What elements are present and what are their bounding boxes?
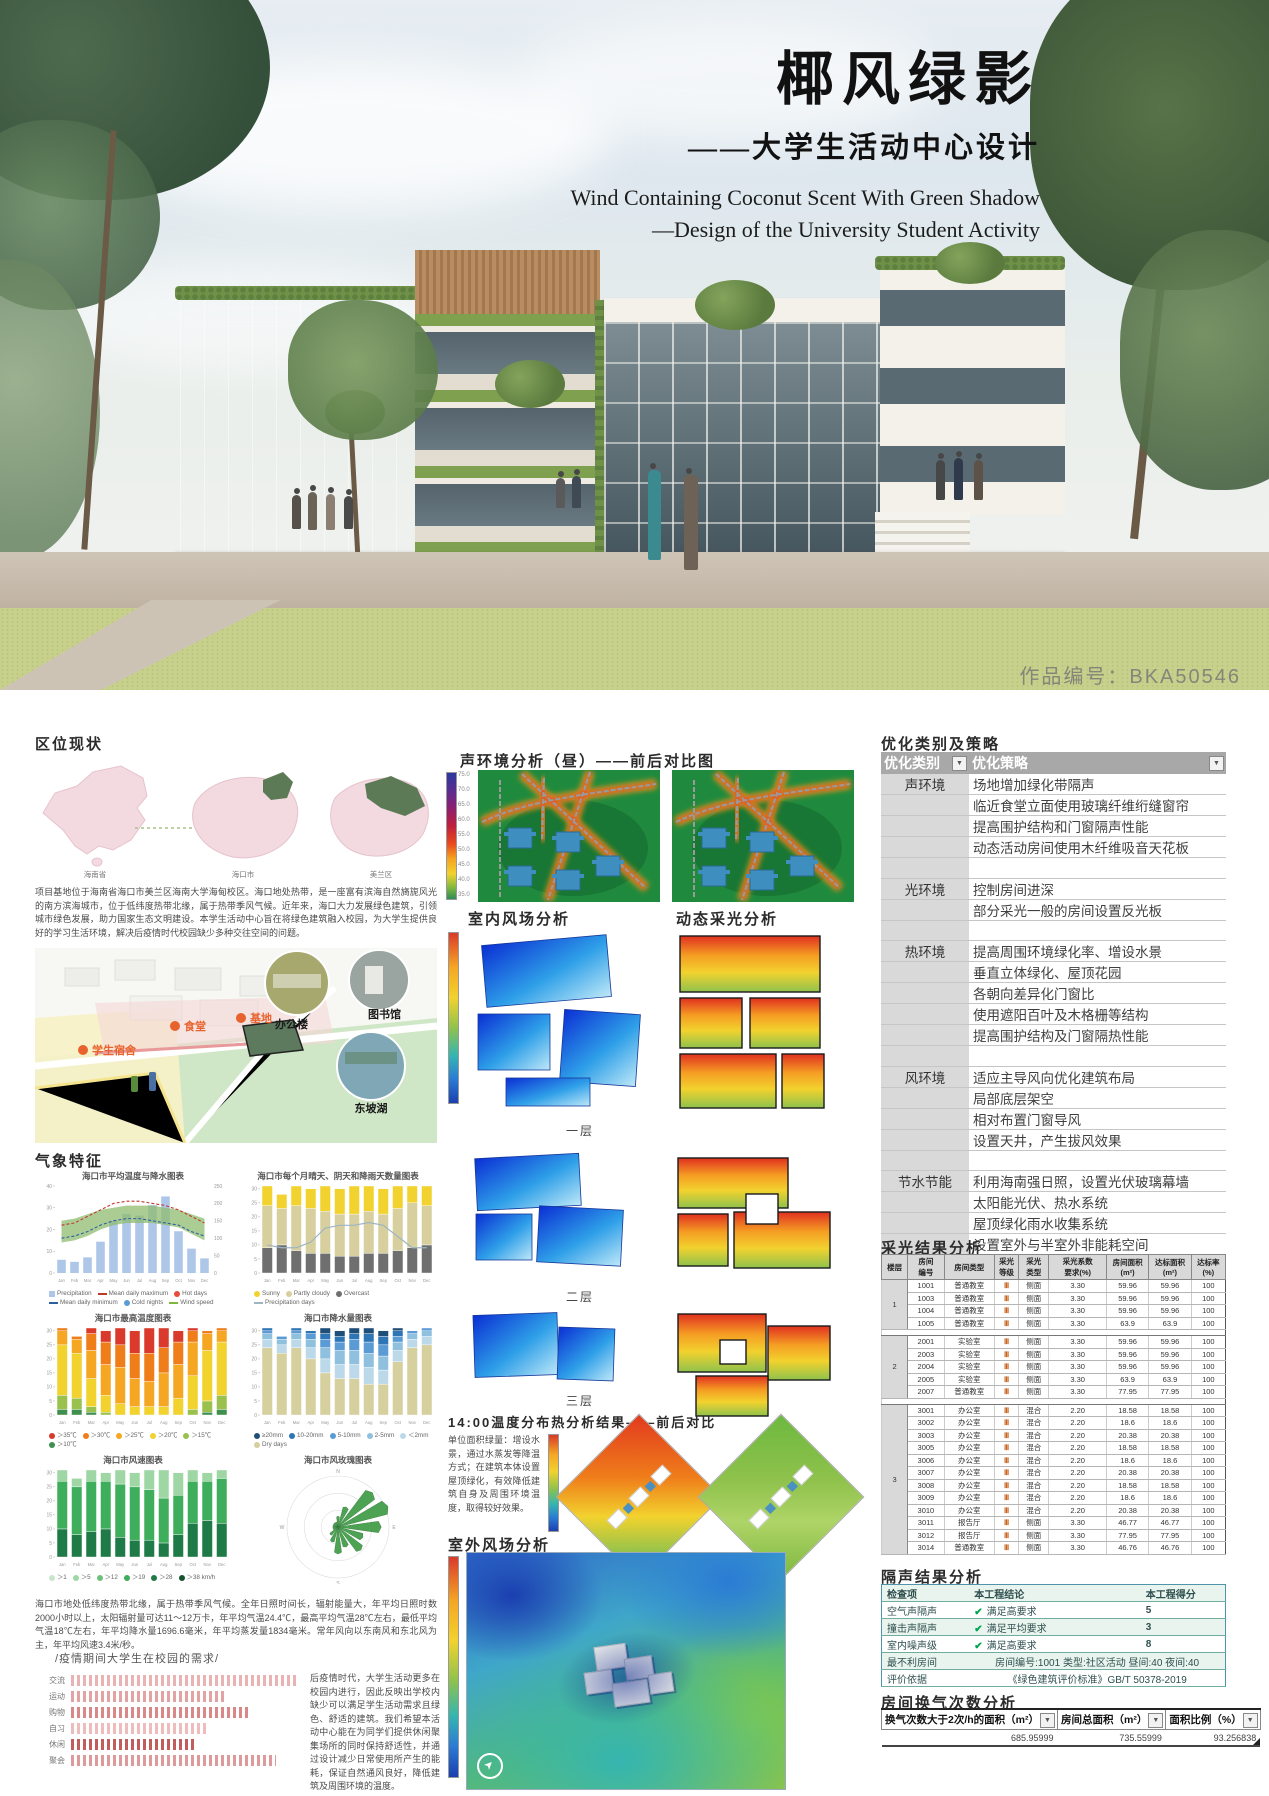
needs-bar-chart: 交流运动购物自习休闲聚会 <box>35 1672 300 1768</box>
needs-label: 购物 <box>35 1707 65 1718</box>
svg-text:Mar: Mar <box>88 1562 96 1567</box>
table-cell: 18.6 <box>1149 1492 1191 1505</box>
column-header: 达标率 (%) <box>1191 1255 1225 1280</box>
conclusion-cell: ✔满足高要求 <box>969 1636 1140 1653</box>
table-cell: 普通教室 <box>944 1305 994 1318</box>
table-cell: 18.58 <box>1149 1479 1191 1492</box>
svg-text:Jan: Jan <box>59 1562 66 1567</box>
filter-dropdown-icon[interactable]: ▼ <box>1209 756 1224 771</box>
svg-text:Jun: Jun <box>131 1420 138 1425</box>
daylight-floor3 <box>668 1306 843 1429</box>
svg-text:Jan: Jan <box>264 1278 271 1283</box>
table-cell: 59.96 <box>1106 1305 1148 1318</box>
svg-text:Dec: Dec <box>423 1420 430 1425</box>
table-row: 撞击声隔声✔满足平均要求3 <box>882 1619 1226 1636</box>
table-cell: 混合 <box>1019 1504 1049 1517</box>
thermal-paragraph: 单位面积绿量：增设水景，通过水蒸发等降温方式；在建筑本体设置屋顶绿化，有效降低建… <box>448 1434 540 1515</box>
opt-col-strategy: 优化策略▼ <box>969 752 1226 774</box>
opt-category-cell: 节水节能 <box>881 1171 969 1192</box>
table-row: 1005普通教室Ⅲ侧面3.3063.963.9100 <box>882 1317 1226 1330</box>
svg-text:25: 25 <box>46 1485 52 1491</box>
svg-text:Oct: Oct <box>189 1562 196 1567</box>
table-cell: 普通教室 <box>944 1542 994 1555</box>
noise-map-before <box>478 770 660 907</box>
legend-item: Cold nights <box>124 1298 164 1307</box>
filter-dropdown-icon[interactable]: ▼ <box>1040 1713 1055 1728</box>
table-cell: 18.6 <box>1149 1417 1191 1430</box>
column-header: 达标面积 (m²) <box>1149 1255 1191 1280</box>
svg-text:Mar: Mar <box>88 1420 96 1425</box>
table-row: 相对布置门窗导风 <box>881 1108 1226 1129</box>
svg-text:Sep: Sep <box>380 1278 388 1283</box>
table-cell: 1003 <box>908 1292 944 1305</box>
indoor-wind-floor2 <box>466 1146 646 1283</box>
chart-legend: ＞35℃＞30℃＞25℃＞20℃＞15℃＞10℃ <box>35 1431 231 1450</box>
filter-dropdown-icon[interactable]: ▼ <box>1148 1713 1163 1728</box>
table-header-row: 检查项本工程结论本工程得分 <box>882 1585 1226 1602</box>
hero-rendering: 椰风绿影 ——大学生活动中心设计 Wind Containing Coconut… <box>0 0 1269 690</box>
table-cell: 办公室 <box>944 1492 994 1505</box>
needs-label: 聚会 <box>35 1755 65 1766</box>
svg-text:Feb: Feb <box>73 1420 81 1425</box>
svg-text:15: 15 <box>251 1371 257 1377</box>
opt-category-cell: 声环境 <box>881 774 969 795</box>
opt-category-cell: 光环境 <box>881 878 969 899</box>
table-row: 2004实验室Ⅲ侧面3.3059.9659.96100 <box>882 1361 1226 1374</box>
table-cell: 3009 <box>908 1492 944 1505</box>
svg-text:Jun: Jun <box>336 1420 343 1425</box>
opt-strategy-cell <box>969 920 1226 941</box>
table-row: 1004普通教室Ⅲ侧面3.3059.9659.96100 <box>882 1305 1226 1318</box>
table-cell: 办公室 <box>944 1504 994 1517</box>
svg-text:250: 250 <box>214 1184 223 1190</box>
table-cell: 3.30 <box>1049 1517 1107 1530</box>
svg-text:Feb: Feb <box>278 1420 286 1425</box>
table-cell: 2.20 <box>1049 1492 1107 1505</box>
table-cell: 59.96 <box>1149 1361 1191 1374</box>
table-cell: Ⅲ <box>994 1517 1018 1530</box>
floor-label-2: 二层 <box>566 1288 594 1305</box>
table-cell: 混合 <box>1019 1417 1049 1430</box>
optimization-table: 优化类别▼ 优化策略▼ 声环境场地增加绿化带隔声临近食堂立面使用玻璃纤维绗缝窗帘… <box>881 752 1226 1255</box>
svg-text:15: 15 <box>46 1371 52 1377</box>
table-cell: 混合 <box>1019 1442 1049 1455</box>
svg-text:Jul: Jul <box>352 1278 357 1283</box>
svg-text:0: 0 <box>214 1271 217 1277</box>
table-cell: 3006 <box>908 1454 944 1467</box>
table-cell: 2004 <box>908 1361 944 1374</box>
table-cell: 18.58 <box>1106 1479 1148 1492</box>
table-cell: 侧面 <box>1019 1542 1049 1555</box>
opt-category-cell <box>881 1129 969 1150</box>
svg-text:10: 10 <box>251 1243 257 1249</box>
column-header-label: 面积比例（%） <box>1169 1714 1241 1726</box>
person-silhouette <box>974 460 983 500</box>
balcony-plant <box>495 360 565 408</box>
svg-text:20: 20 <box>251 1215 257 1221</box>
svg-text:Oct: Oct <box>175 1278 182 1283</box>
opt-strategy-cell: 提高围护结构和门窗隔声性能 <box>969 816 1226 837</box>
table-cell: 普通教室 <box>944 1292 994 1305</box>
table-cell: Ⅲ <box>994 1479 1018 1492</box>
table-cell: 1005 <box>908 1317 944 1330</box>
legend-item: Precipitation <box>49 1289 92 1298</box>
svg-text:25: 25 <box>251 1343 257 1349</box>
roof-hedge <box>175 286 420 300</box>
table-cell: Ⅲ <box>994 1386 1018 1399</box>
person-silhouette <box>326 494 335 530</box>
table-cell: 20.38 <box>1106 1467 1148 1480</box>
column-header: 本工程结论 <box>969 1585 1140 1602</box>
detail-cell: 房间编号:1001 类型:社区活动 昼间:40 夜间:40 <box>969 1653 1225 1670</box>
table-cell: 侧面 <box>1019 1386 1049 1399</box>
table-cell: 20.38 <box>1149 1467 1191 1480</box>
chart-title: 海口市风速图表 <box>35 1454 231 1466</box>
roof-plant <box>695 280 775 330</box>
noise-scale-label: 65.0 <box>458 802 470 808</box>
svg-text:Jan: Jan <box>58 1278 65 1283</box>
table-cell: 100 <box>1191 1417 1225 1430</box>
table-cell: 3.30 <box>1049 1336 1107 1349</box>
svg-text:Apr: Apr <box>307 1420 314 1425</box>
noise-scale-label: 45.0 <box>458 862 470 868</box>
chart-legend: PrecipitationMean daily maximumHot daysM… <box>35 1289 231 1308</box>
table-cell: Ⅲ <box>994 1373 1018 1386</box>
table-row: 屋顶绿化雨水收集系统 <box>881 1213 1226 1234</box>
filter-dropdown-icon[interactable]: ▼ <box>1243 1713 1258 1728</box>
opt-strategy-cell: 太阳能光伏、热水系统 <box>969 1192 1226 1213</box>
chart-plot: NESW <box>240 1466 436 1589</box>
noise-scale-label: 55.0 <box>458 832 470 838</box>
table-cell: 3.30 <box>1049 1348 1107 1361</box>
table-row: 部分采光一般的房间设置反光板 <box>881 899 1226 920</box>
floor-cell: 3 <box>882 1404 908 1554</box>
chart-title: 海口市平均温度与降水图表 <box>35 1170 231 1182</box>
column-header: 换气次数大于2次/h的面积（m²）▼ <box>882 1709 1058 1730</box>
table-cell: 100 <box>1191 1361 1225 1374</box>
column-header: 房间总面积（m²）▼ <box>1058 1709 1166 1730</box>
legend-item: Precipitation days <box>254 1298 315 1307</box>
table-cell: Ⅲ <box>994 1305 1018 1318</box>
floor-label-1: 一层 <box>566 1122 594 1139</box>
svg-text:5: 5 <box>49 1541 52 1547</box>
north-arrow-icon: ➤ <box>472 1748 509 1785</box>
needs-paragraph: 后疫情时代，大学生活动更多在校园内进行，因此反映出学校内缺少可以满足学生活动需求… <box>310 1672 440 1794</box>
table-cell: 20.38 <box>1106 1429 1148 1442</box>
chart-plot: 051015202530JanFebMarAprMayJunJulAugSepO… <box>35 1466 231 1573</box>
chart-plot: 051015202530JanFebMarAprMayJunJulAugSepO… <box>240 1324 436 1431</box>
table-cell: 63.9 <box>1106 1373 1148 1386</box>
table-row: 室内噪声级✔满足高要求8 <box>882 1636 1226 1653</box>
campus-site-map: 学生宿舍 食堂 基地 办公楼 图书馆 东坡湖 <box>35 948 437 1143</box>
svg-text:Oct: Oct <box>394 1420 401 1425</box>
table-cell: 46.77 <box>1106 1517 1148 1530</box>
table-cell: 3003 <box>908 1429 944 1442</box>
table-row: 2003实验室Ⅲ侧面3.3059.9659.96100 <box>882 1348 1226 1361</box>
outdoor-wind-color-scale <box>448 1556 459 1778</box>
svg-text:15: 15 <box>46 1513 52 1519</box>
table-cell: 3005 <box>908 1442 944 1455</box>
svg-text:Dec: Dec <box>218 1420 225 1425</box>
table-cell: 3.30 <box>1049 1305 1107 1318</box>
table-cell: 2.20 <box>1049 1454 1107 1467</box>
table-cell: 普通教室 <box>944 1317 994 1330</box>
table-row: 3012报告厅Ⅲ侧面3.3077.9577.95100 <box>882 1529 1226 1542</box>
legend-item: ＞35℃ <box>49 1431 77 1440</box>
table-cell: 100 <box>1191 1504 1225 1517</box>
svg-text:10: 10 <box>46 1249 52 1255</box>
table-cell: 46.76 <box>1106 1542 1148 1555</box>
legend-item: ＞12 <box>97 1573 118 1582</box>
table-cell: 3002 <box>908 1417 944 1430</box>
table-cell: 办公室 <box>944 1467 994 1480</box>
check-item-cell: 撞击声隔声 <box>882 1619 970 1636</box>
svg-text:S: S <box>336 1581 340 1584</box>
table-row: 1003普通教室Ⅲ侧面3.3059.9659.96100 <box>882 1292 1226 1305</box>
svg-text:Nov: Nov <box>188 1278 196 1283</box>
check-icon: ✔ <box>974 1607 982 1618</box>
opt-category-cell <box>881 795 969 816</box>
opt-strategy-cell <box>969 858 1226 879</box>
conclusion-cell: ✔满足平均要求 <box>969 1619 1140 1636</box>
table-cell: 77.95 <box>1149 1386 1191 1399</box>
needs-label: 自习 <box>35 1723 65 1734</box>
table-cell: 63.9 <box>1149 1317 1191 1330</box>
table-cell: Ⅲ <box>994 1336 1018 1349</box>
svg-text:0: 0 <box>254 1271 257 1277</box>
svg-text:Mar: Mar <box>84 1278 92 1283</box>
person-silhouette <box>954 458 963 500</box>
opt-strategy-cell: 使用遮阳百叶及木格栅等结构 <box>969 1004 1226 1025</box>
needs-row: 运动 <box>35 1688 300 1704</box>
table-cell: 办公室 <box>944 1404 994 1417</box>
needs-label: 休闲 <box>35 1739 65 1750</box>
chart-wind-rose: 海口市风玫瑰图表 NESW <box>240 1454 436 1594</box>
opt-strategy-cell: 部分采光一般的房间设置反光板 <box>969 899 1226 920</box>
table-cell: 3010 <box>908 1504 944 1517</box>
needs-bar <box>71 1675 296 1686</box>
thermal-map-after <box>722 1438 840 1556</box>
person-silhouette <box>572 476 581 508</box>
svg-text:Aug: Aug <box>149 1278 157 1283</box>
svg-text:0: 0 <box>49 1413 52 1419</box>
table-cell: 2005 <box>908 1373 944 1386</box>
floor-label-3: 三层 <box>566 1392 594 1409</box>
svg-text:Feb: Feb <box>73 1562 81 1567</box>
table-row: 动态活动房间使用木纤维吸音天花板 <box>881 837 1226 858</box>
table-cell: 59.96 <box>1106 1292 1148 1305</box>
table-cell: 3007 <box>908 1467 944 1480</box>
table-cell: 18.58 <box>1106 1404 1148 1417</box>
building-mid-wing <box>415 314 600 555</box>
value-cell: 735.55999 <box>1058 1730 1166 1747</box>
table-cell: Ⅲ <box>994 1529 1018 1542</box>
noise-scale-label: 35.0 <box>458 892 470 898</box>
climate-paragraph: 海口市地处低纬度热带北缘，属于热带季风气候。全年日照时间长，辐射能量大，年平均日… <box>35 1598 437 1652</box>
table-cell: Ⅲ <box>994 1542 1018 1555</box>
table-cell: 18.6 <box>1106 1492 1148 1505</box>
opt-category-cell <box>881 1108 969 1129</box>
svg-text:Dec: Dec <box>423 1278 430 1283</box>
table-cell: 3.30 <box>1049 1386 1107 1399</box>
table-cell: 59.96 <box>1149 1348 1191 1361</box>
table-cell: 18.6 <box>1149 1454 1191 1467</box>
table-row: 声环境场地增加绿化带隔声 <box>881 774 1226 795</box>
table-cell: 报告厅 <box>944 1517 994 1530</box>
svg-text:50: 50 <box>214 1253 220 1259</box>
table-cell: 1004 <box>908 1305 944 1318</box>
table-row: 22001实验室Ⅲ侧面3.3059.9659.96100 <box>882 1336 1226 1349</box>
opt-category-cell <box>881 1087 969 1108</box>
table-cell: 59.96 <box>1149 1305 1191 1318</box>
column-header: 采光 类型 <box>1019 1255 1049 1280</box>
svg-text:10: 10 <box>46 1527 52 1533</box>
table-row: 3014普通教室Ⅲ侧面3.3046.7646.76100 <box>882 1542 1226 1555</box>
table-row: 热环境提高周围环境绿化率、增设水景 <box>881 941 1226 962</box>
table-row: 2005实验室Ⅲ侧面3.3063.963.9100 <box>882 1373 1226 1386</box>
column-header: 检查项 <box>882 1585 970 1602</box>
table-cell: Ⅲ <box>994 1492 1018 1505</box>
column-header: 本工程得分 <box>1141 1585 1226 1602</box>
table-cell: 混合 <box>1019 1429 1049 1442</box>
table-cell: 2007 <box>908 1386 944 1399</box>
noise-scale-label: 40.0 <box>458 877 470 883</box>
svg-text:Nov: Nov <box>409 1420 417 1425</box>
svg-text:30: 30 <box>251 1187 257 1193</box>
legend-item: ＞25℃ <box>116 1431 144 1440</box>
check-item-cell: 评价依据 <box>882 1670 970 1687</box>
site-label-library: 图书馆 <box>368 1007 401 1021</box>
thermal-map-before <box>580 1438 698 1556</box>
opt-strategy-cell: 设置天井，产生拔风效果 <box>969 1129 1226 1150</box>
legend-item: Partly cloudy <box>286 1289 330 1298</box>
table-cell: Ⅲ <box>994 1317 1018 1330</box>
thermal-color-scale <box>548 1434 559 1532</box>
table-cell: 3.30 <box>1049 1373 1107 1386</box>
svg-text:Sep: Sep <box>162 1278 170 1283</box>
needs-row: 交流 <box>35 1672 300 1688</box>
noise-scale-label: 50.0 <box>458 847 470 853</box>
opt-strategy-cell: 相对布置门窗导风 <box>969 1108 1226 1129</box>
table-cell: Ⅲ <box>994 1404 1018 1417</box>
table-cell: 63.9 <box>1106 1317 1148 1330</box>
svg-text:10: 10 <box>46 1385 52 1391</box>
indoor-wind-floor1 <box>466 928 656 1118</box>
table-row: 3009办公室Ⅲ混合2.2018.618.6100 <box>882 1492 1226 1505</box>
table-row: 空气声隔声✔满足高要求5 <box>882 1602 1226 1619</box>
detail-cell: 《绿色建筑评价标准》GB/T 50378-2019 <box>969 1670 1225 1687</box>
table-cell: 侧面 <box>1019 1529 1049 1542</box>
table-cell: 3001 <box>908 1404 944 1417</box>
svg-text:150: 150 <box>214 1219 223 1225</box>
noise-map-after <box>672 770 854 907</box>
svg-text:15: 15 <box>251 1229 257 1235</box>
indoor-wind-color-scale <box>448 932 459 1104</box>
column-header-label: 房间总面积（m²） <box>1061 1714 1147 1726</box>
svg-text:Dec: Dec <box>201 1278 208 1283</box>
map-label: 海南省 <box>84 869 107 879</box>
table-row-spacer <box>881 1046 1226 1067</box>
table-cell: 侧面 <box>1019 1317 1049 1330</box>
chart-temp-precip: 海口市平均温度与降水图表 010203040050100150200250Jan… <box>35 1170 231 1310</box>
legend-item: Mean daily minimum <box>49 1298 118 1307</box>
legend-item: 2-5mm <box>367 1431 395 1440</box>
table-row-spacer <box>881 920 1226 941</box>
svg-text:Aug: Aug <box>160 1420 168 1425</box>
table-cell: Ⅲ <box>994 1280 1018 1293</box>
svg-text:Mar: Mar <box>293 1278 301 1283</box>
needs-row: 聚会 <box>35 1752 300 1768</box>
poster: 椰风绿影 ——大学生活动中心设计 Wind Containing Coconut… <box>0 0 1269 1796</box>
table-row: 3011报告厅Ⅲ侧面3.3046.7746.77100 <box>882 1517 1226 1530</box>
svg-text:40: 40 <box>46 1184 52 1190</box>
table-row: 节水节能利用海南强日照，设置光伏玻璃幕墙 <box>881 1171 1226 1192</box>
check-item-cell: 最不利房间 <box>882 1653 970 1670</box>
opt-category-cell <box>881 1046 969 1067</box>
legend-item: ＞20℃ <box>150 1431 178 1440</box>
value-cell: 685.95999 <box>882 1730 1058 1747</box>
table-cell: 100 <box>1191 1479 1225 1492</box>
chart-plot: 051015202530JanFebMarAprMayJunJulAugSepO… <box>240 1182 436 1289</box>
column-header: 面积比例（%）▼ <box>1166 1709 1260 1730</box>
table-cell: Ⅲ <box>994 1504 1018 1517</box>
opt-strategy-cell: 设置室外与半室外非能耗空间 <box>969 1234 1226 1255</box>
table-cell: 100 <box>1191 1529 1225 1542</box>
section-heading-climate: 气象特征 <box>35 1150 103 1171</box>
svg-text:Dec: Dec <box>218 1562 225 1567</box>
table-cell: 100 <box>1191 1317 1225 1330</box>
opt-strategy-cell: 动态活动房间使用木纤维吸音天花板 <box>969 837 1226 858</box>
table-cell: 20.38 <box>1149 1504 1191 1517</box>
table-cell: 2.20 <box>1049 1504 1107 1517</box>
person-silhouette <box>556 478 565 508</box>
filter-dropdown-icon[interactable]: ▼ <box>952 756 967 771</box>
table-cell: 63.9 <box>1149 1373 1191 1386</box>
legend-item: ＞28 <box>151 1573 172 1582</box>
table-cell: Ⅲ <box>994 1429 1018 1442</box>
svg-text:Sep: Sep <box>175 1562 183 1567</box>
table-cell: 实验室 <box>944 1348 994 1361</box>
table-cell: 3011 <box>908 1517 944 1530</box>
opt-category-cell <box>881 1004 969 1025</box>
svg-text:Jul: Jul <box>352 1420 357 1425</box>
svg-text:May: May <box>321 1420 330 1425</box>
floor-cell: 1 <box>882 1280 908 1330</box>
table-cell: 18.6 <box>1106 1417 1148 1430</box>
map-label: 美兰区 <box>370 869 393 879</box>
opt-strategy-cell <box>969 1150 1226 1171</box>
table-cell: 100 <box>1191 1542 1225 1555</box>
table-cell: 2.20 <box>1049 1417 1107 1430</box>
svg-text:Feb: Feb <box>71 1278 79 1283</box>
svg-text:Jun: Jun <box>336 1278 343 1283</box>
chart-wind-days: 海口市风速图表 051015202530JanFebMarAprMayJunJu… <box>35 1454 231 1594</box>
chart-title: 海口市每个月晴天、阴天和降雨天数量图表 <box>240 1170 436 1182</box>
table-cell: 100 <box>1191 1292 1225 1305</box>
table-cell: 100 <box>1191 1467 1225 1480</box>
site-label-dorm: 学生宿舍 <box>92 1043 137 1057</box>
needs-bar <box>71 1691 226 1702</box>
opt-strategy-cell: 屋顶绿化雨水收集系统 <box>969 1213 1226 1234</box>
conclusion-cell: ✔满足高要求 <box>969 1602 1140 1619</box>
legend-item: Sunny <box>254 1289 280 1298</box>
svg-text:W: W <box>280 1525 285 1531</box>
table-cell: 59.96 <box>1149 1336 1191 1349</box>
table-row: 最不利房间房间编号:1001 类型:社区活动 昼间:40 夜间:40 <box>882 1653 1226 1670</box>
person-silhouette <box>344 496 353 529</box>
opt-strategy-cell: 提高周围环境绿化率、增设水景 <box>969 941 1226 962</box>
legend-item: ＞5 <box>73 1573 91 1582</box>
